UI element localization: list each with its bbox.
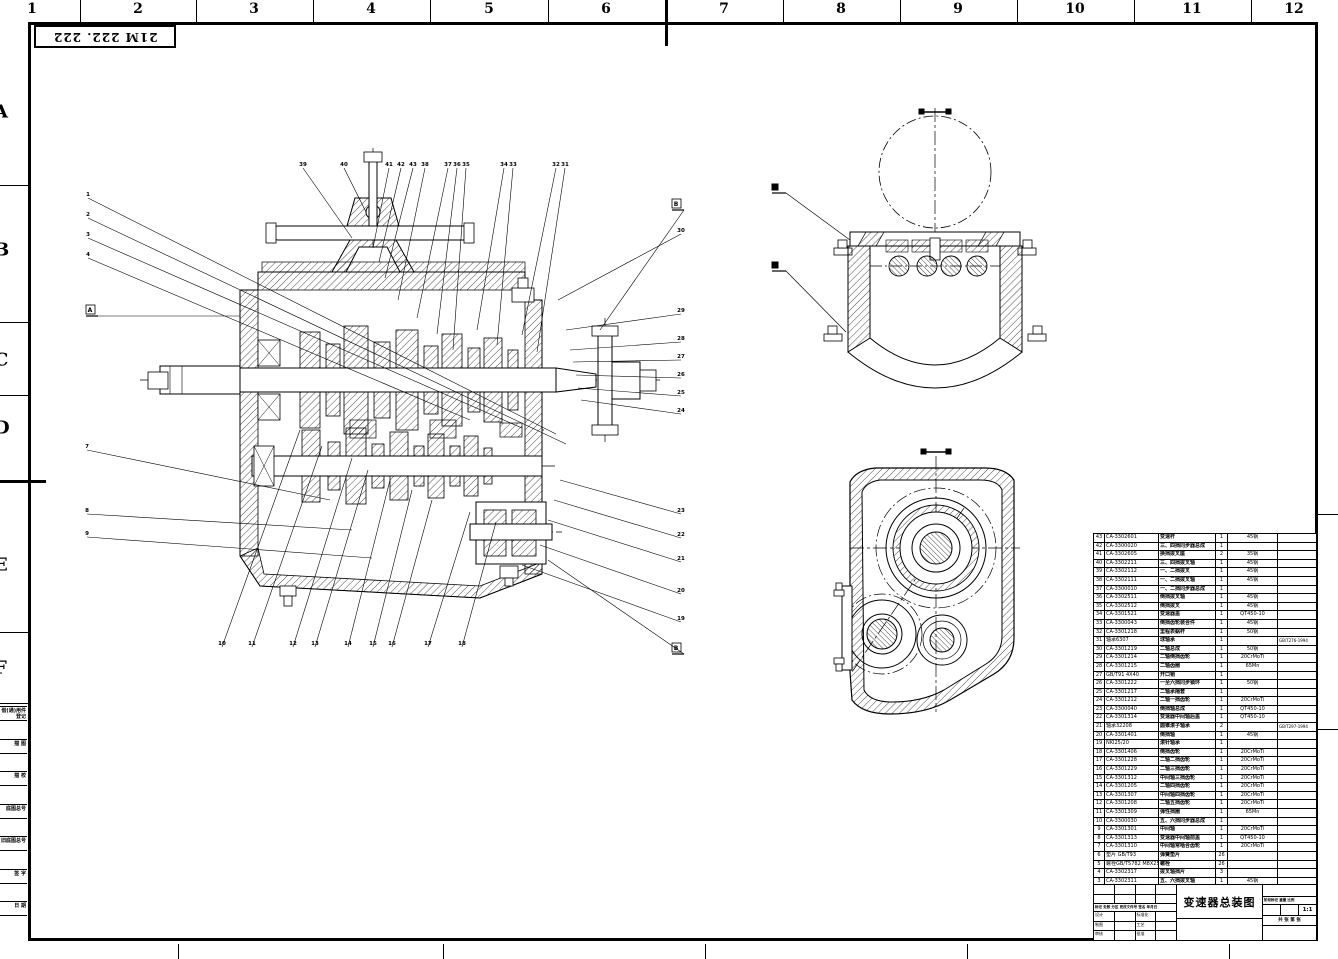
table-cell: 24 — [1094, 697, 1105, 705]
table-row: 19NKI25/20滚针轴承1 — [1094, 740, 1316, 749]
balloon-number: 23 — [677, 508, 685, 514]
table-cell: 31 — [1094, 637, 1105, 645]
table-cell: 换挡拨叉座 — [1159, 551, 1216, 559]
table-cell: 变速杆 — [1159, 534, 1216, 542]
table-cell: CA-3301222 — [1105, 680, 1159, 688]
balloon-number: 42 — [397, 162, 405, 168]
table-cell: 41 — [1094, 551, 1105, 559]
table-cell: 50钢 — [1228, 646, 1278, 654]
table-cell: CA-3301307 — [1105, 792, 1159, 800]
table-cell: 轴承32208 — [1105, 723, 1159, 731]
table-cell: 1 — [1216, 680, 1228, 688]
section-letter: B — [674, 645, 679, 652]
balloon-number: 12 — [289, 641, 297, 647]
revision-header: 标记 处数 分区 更改文件号 签名 年月日 — [1094, 904, 1176, 912]
table-cell: NKI25/20 — [1105, 740, 1159, 748]
table-cell: 1 — [1216, 826, 1228, 834]
table-row: 21轴承32208圆锥滚子轴承2GB/T297-1994 — [1094, 723, 1316, 732]
table-row: 30CA-3301219二轴总成150钢 — [1094, 646, 1316, 655]
balloon-number: 34 — [500, 162, 508, 168]
table-cell: 1 — [1216, 543, 1228, 551]
table-row: 24CA-3301212二轴一挡齿轮120CrMoTi — [1094, 697, 1316, 706]
balloon-number: 7 — [85, 444, 89, 450]
table-cell: 16 — [1094, 766, 1105, 774]
table-cell — [1228, 861, 1278, 869]
table-cell: 4 — [1094, 869, 1105, 877]
table-cell: 42 — [1094, 543, 1105, 551]
table-row: 12CA-3301208二轴五挡齿轮120CrMoTi — [1094, 800, 1316, 809]
table-cell: 13 — [1094, 792, 1105, 800]
table-cell — [1278, 560, 1316, 568]
table-row: 34CA-3301521变速器盖1QT450-10 — [1094, 611, 1316, 620]
table-cell — [1278, 646, 1316, 654]
table-cell — [1228, 586, 1278, 594]
table-cell: 1 — [1216, 775, 1228, 783]
balloon-number: 40 — [340, 162, 348, 168]
table-cell: 1 — [1216, 603, 1228, 611]
table-cell: 1 — [1216, 577, 1228, 585]
table-cell: 倒挡轴 — [1159, 732, 1216, 740]
table-row: 18CA-3301406倒挡齿轮120CrMoTi — [1094, 749, 1316, 758]
table-cell: 1 — [1216, 732, 1228, 740]
table-cell: 20CrMoTi — [1228, 800, 1278, 808]
table-cell — [1278, 766, 1316, 774]
table-row: 32CA-3301218里程表蜗杆150钢 — [1094, 629, 1316, 638]
table-cell: 26 — [1216, 852, 1228, 860]
table-cell: 1 — [1216, 611, 1228, 619]
table-cell: CA-3301309 — [1105, 809, 1159, 817]
table-cell: CA-3302601 — [1105, 534, 1159, 542]
table-cell: 36 — [1094, 594, 1105, 602]
table-cell: 开口销 — [1159, 672, 1216, 680]
table-cell: 二轴二挡齿轮 — [1159, 757, 1216, 765]
balloon-number: 11 — [248, 641, 256, 647]
table-cell: 9 — [1094, 826, 1105, 834]
table-cell: 垫片 GB/T93 — [1105, 852, 1159, 860]
table-cell — [1278, 697, 1316, 705]
table-cell: 21 — [1094, 723, 1105, 731]
balloon-number: 20 — [677, 588, 685, 594]
table-row: 11CA-3301309弹性挡圈165Mn — [1094, 809, 1316, 818]
table-cell: 二轴倒挡齿轮 — [1159, 654, 1216, 662]
table-cell — [1278, 818, 1316, 826]
table-row: 23CA-3300040倒挡轴总成1QT450-10 — [1094, 706, 1316, 715]
balloon-number: 2 — [86, 212, 90, 218]
table-cell — [1278, 603, 1316, 611]
table-row: 7CA-3301310中间轴常啮合齿轮120CrMoTi — [1094, 843, 1316, 852]
table-cell — [1278, 783, 1316, 791]
table-cell: 二轴齿圈 — [1159, 663, 1216, 671]
table-cell: 27 — [1094, 672, 1105, 680]
stage-header: 阶段标记 重量 比例 — [1263, 896, 1316, 905]
table-cell: 22 — [1094, 714, 1105, 722]
table-cell: 中间轴三挡齿轮 — [1159, 775, 1216, 783]
table-cell: CA-3301406 — [1105, 749, 1159, 757]
table-cell: QT450-10 — [1228, 706, 1278, 714]
table-cell: 18 — [1094, 749, 1105, 757]
table-cell: CA-3300010 — [1105, 586, 1159, 594]
table-cell: 三、四挡同步器总成 — [1159, 543, 1216, 551]
table-cell: 65Mn — [1228, 809, 1278, 817]
table-cell: 1 — [1216, 697, 1228, 705]
table-cell: 20CrMoTi — [1228, 826, 1278, 834]
table-cell: CA-3302211 — [1105, 560, 1159, 568]
table-cell: 8 — [1094, 835, 1105, 843]
table-cell — [1278, 749, 1316, 757]
table-cell: 轴承6307 — [1105, 637, 1159, 645]
drawing-title: 变速器总装图 — [1177, 885, 1262, 919]
table-cell: 螺栓 — [1159, 861, 1216, 869]
table-cell: 11 — [1094, 809, 1105, 817]
table-cell: 一、二挡同步器总成 — [1159, 586, 1216, 594]
table-cell — [1278, 809, 1316, 817]
table-cell: 45钢 — [1228, 732, 1278, 740]
table-cell — [1278, 792, 1316, 800]
table-cell — [1278, 672, 1316, 680]
table-row: 15CA-3301312中间轴三挡齿轮120CrMoTi — [1094, 775, 1316, 784]
table-cell: CA-3300040 — [1105, 706, 1159, 714]
weight-value — [1281, 905, 1299, 915]
table-cell: 五、六挡同步器总成 — [1159, 818, 1216, 826]
balloon-number: 18 — [458, 641, 466, 647]
balloon-number: 39 — [299, 162, 307, 168]
table-row: 33CA-3300043倒挡齿轮装合件145钢 — [1094, 620, 1316, 629]
balloon-number: 35 — [462, 162, 470, 168]
table-cell: 20CrMoTi — [1228, 783, 1278, 791]
table-row: 9CA-3301301中间轴120CrMoTi — [1094, 826, 1316, 835]
table-cell: CA-3301215 — [1105, 663, 1159, 671]
table-cell: 中间轴四挡齿轮 — [1159, 792, 1216, 800]
table-cell: 螺栓GB/T5782 M8X25 — [1105, 861, 1159, 869]
table-cell — [1228, 637, 1278, 645]
table-cell: 17 — [1094, 757, 1105, 765]
table-cell: 二轴四挡齿轮 — [1159, 783, 1216, 791]
table-cell: 20 — [1094, 732, 1105, 740]
balloon-number: 38 — [421, 162, 429, 168]
table-cell — [1228, 672, 1278, 680]
table-cell — [1278, 775, 1316, 783]
table-cell: 倒挡拨叉 — [1159, 603, 1216, 611]
table-row: 42CA-3300020三、四挡同步器总成1 — [1094, 543, 1316, 552]
table-cell — [1278, 843, 1316, 851]
table-cell: 40 — [1094, 560, 1105, 568]
table-cell: 25 — [1094, 689, 1105, 697]
table-cell: 5 — [1094, 861, 1105, 869]
table-cell: CA-3300030 — [1105, 818, 1159, 826]
table-cell: 一、二挡拨叉轴 — [1159, 577, 1216, 585]
table-cell: CA-3300020 — [1105, 543, 1159, 551]
main-section-view — [140, 148, 662, 606]
table-cell: QT450-10 — [1228, 611, 1278, 619]
table-cell: CA-3301313 — [1105, 835, 1159, 843]
table-cell: 1 — [1216, 714, 1228, 722]
table-cell — [1278, 826, 1316, 834]
table-cell: 一、二挡拨叉 — [1159, 568, 1216, 576]
table-cell — [1278, 577, 1316, 585]
table-cell: 1 — [1216, 706, 1228, 714]
table-row: 10CA-3300030五、六挡同步器总成1 — [1094, 818, 1316, 827]
table-row: 36CA-3302511倒挡拨叉轴145钢 — [1094, 594, 1316, 603]
table-cell: CA-3302111 — [1105, 577, 1159, 585]
balloon-number: 26 — [677, 372, 685, 378]
table-row: 4CA-3302317拨叉轴挡片3 — [1094, 869, 1316, 878]
title-block: 标记 处数 分区 更改文件号 签名 年月日 设计标准化 制图工艺 审核批准 变速… — [1093, 884, 1317, 941]
balloon-number: 24 — [677, 408, 685, 414]
table-cell: CA-3301208 — [1105, 800, 1159, 808]
balloon-number: 4 — [86, 252, 90, 258]
table-cell: 二轴三挡齿轮 — [1159, 766, 1216, 774]
table-cell: 45钢 — [1228, 568, 1278, 576]
balloon-number: 14 — [344, 641, 352, 647]
table-row: 28CA-3301215二轴齿圈165Mn — [1094, 663, 1316, 672]
table-row: 17CA-3301228二轴二挡齿轮120CrMoTi — [1094, 757, 1316, 766]
table-row: 39CA-3302112一、二挡拨叉145钢 — [1094, 568, 1316, 577]
table-cell: 3 — [1216, 869, 1228, 877]
table-cell — [1278, 714, 1316, 722]
table-cell: 32 — [1094, 629, 1105, 637]
table-cell: GB/T297-1994 — [1278, 723, 1316, 731]
table-cell: 倒挡拨叉轴 — [1159, 594, 1216, 602]
table-cell: CA-3301310 — [1105, 843, 1159, 851]
table-cell — [1278, 663, 1316, 671]
balloon-number: 9 — [85, 531, 89, 537]
table-cell — [1228, 723, 1278, 731]
table-cell: 1 — [1216, 792, 1228, 800]
table-cell — [1278, 732, 1316, 740]
table-cell: 14 — [1094, 783, 1105, 791]
table-cell — [1228, 740, 1278, 748]
table-cell: 1 — [1216, 843, 1228, 851]
table-cell: 12 — [1094, 800, 1105, 808]
drawing-title-cell: 变速器总装图 — [1177, 885, 1263, 940]
table-cell: 1 — [1216, 689, 1228, 697]
table-cell: CA-3301521 — [1105, 611, 1159, 619]
balloon-number: 16 — [388, 641, 396, 647]
table-cell: 二轴承隔套 — [1159, 689, 1216, 697]
table-cell: CA-3302317 — [1105, 869, 1159, 877]
balloon-number: 8 — [85, 508, 89, 514]
table-cell: 7 — [1094, 843, 1105, 851]
table-cell: 45钢 — [1228, 534, 1278, 542]
table-cell: QT450-10 — [1228, 835, 1278, 843]
table-cell: 1 — [1216, 586, 1228, 594]
table-cell: 26 — [1216, 861, 1228, 869]
table-row: 29CA-3301214二轴倒挡齿轮120CrMoTi — [1094, 654, 1316, 663]
table-row: 41CA-3302605换挡拨叉座235钢 — [1094, 551, 1316, 560]
table-cell: 50钢 — [1228, 629, 1278, 637]
table-cell: 20CrMoTi — [1228, 697, 1278, 705]
table-cell — [1278, 757, 1316, 765]
table-cell: CA-3300043 — [1105, 620, 1159, 628]
table-cell — [1228, 689, 1278, 697]
balloon-number: 28 — [677, 336, 685, 342]
table-cell: 19 — [1094, 740, 1105, 748]
table-cell: 1 — [1216, 620, 1228, 628]
balloon-number: 15 — [369, 641, 377, 647]
table-cell: 20CrMoTi — [1228, 792, 1278, 800]
table-cell: CA-3301301 — [1105, 826, 1159, 834]
table-cell: 20CrMoTi — [1228, 757, 1278, 765]
table-cell: 6 — [1094, 852, 1105, 860]
table-cell — [1278, 680, 1316, 688]
sheet-count: 共 张 第 张 — [1263, 916, 1316, 926]
table-cell — [1278, 800, 1316, 808]
table-cell: CA-3301214 — [1105, 654, 1159, 662]
table-cell: CA-3301219 — [1105, 646, 1159, 654]
table-cell: CA-3301205 — [1105, 783, 1159, 791]
balloon-number: 32 — [552, 162, 560, 168]
table-row: 25CA-3301217二轴承隔套1 — [1094, 689, 1316, 698]
table-cell: 20CrMoTi — [1228, 843, 1278, 851]
table-row: 27GB/T91 4X40开口销1 — [1094, 672, 1316, 681]
table-cell: 37 — [1094, 586, 1105, 594]
table-cell — [1278, 861, 1316, 869]
balloon-number: 30 — [677, 228, 685, 234]
table-cell: 10 — [1094, 818, 1105, 826]
table-cell — [1278, 629, 1316, 637]
table-row: 40CA-3302211三、四挡拨叉轴145钢 — [1094, 560, 1316, 569]
table-cell: 65Mn — [1228, 663, 1278, 671]
table-cell: GB/T276-1994 — [1278, 637, 1316, 645]
balloon-number: 27 — [677, 354, 685, 360]
table-cell: 38 — [1094, 577, 1105, 585]
table-cell: 里程表蜗杆 — [1159, 629, 1216, 637]
balloon-number: 3 — [86, 232, 90, 238]
table-cell: CA-3301212 — [1105, 697, 1159, 705]
table-cell: 20CrMoTi — [1228, 654, 1278, 662]
table-cell: 1 — [1216, 783, 1228, 791]
table-cell: 1 — [1216, 835, 1228, 843]
table-cell — [1278, 586, 1316, 594]
table-cell: 45钢 — [1228, 577, 1278, 585]
table-cell: 球轴承 — [1159, 637, 1216, 645]
table-cell — [1278, 594, 1316, 602]
balloon-number: 10 — [218, 641, 226, 647]
table-cell: 1 — [1216, 740, 1228, 748]
table-cell: 1 — [1216, 637, 1228, 645]
table-row: 43CA-3302601变速杆145钢 — [1094, 534, 1316, 543]
table-cell: CA-3301217 — [1105, 689, 1159, 697]
table-cell: QT450-10 — [1228, 714, 1278, 722]
balloon-number: 22 — [677, 532, 685, 538]
table-cell: 20CrMoTi — [1228, 775, 1278, 783]
table-cell: CA-3301218 — [1105, 629, 1159, 637]
table-cell — [1278, 534, 1316, 542]
table-row: 13CA-3301307中间轴四挡齿轮120CrMoTi — [1094, 792, 1316, 801]
balloon-number: 37 — [444, 162, 452, 168]
table-row: 38CA-3302111一、二挡拨叉轴145钢 — [1094, 577, 1316, 586]
table-cell: 33 — [1094, 620, 1105, 628]
table-cell: 二轴五挡齿轮 — [1159, 800, 1216, 808]
table-row: 8CA-3301313变速器中间轴前盖1QT450-10 — [1094, 835, 1316, 844]
balloon-number: 17 — [424, 641, 432, 647]
table-cell: 35钢 — [1228, 551, 1278, 559]
balloon-number: 13 — [311, 641, 319, 647]
table-row: 20CA-3301401倒挡轴145钢 — [1094, 732, 1316, 741]
table-cell: 二轴一挡齿轮 — [1159, 697, 1216, 705]
table-cell: 43 — [1094, 534, 1105, 542]
parts-list-table: 43CA-3302601变速杆145钢42CA-3300020三、四挡同步器总成… — [1093, 533, 1317, 929]
table-cell — [1278, 568, 1316, 576]
table-row: 31轴承6307球轴承1GB/T276-1994 — [1094, 637, 1316, 646]
table-cell: 弹簧垫片 — [1159, 852, 1216, 860]
table-cell: 45钢 — [1228, 560, 1278, 568]
table-cell: 1 — [1216, 672, 1228, 680]
table-cell: 1 — [1216, 568, 1228, 576]
table-cell — [1278, 689, 1316, 697]
table-cell: 倒挡齿轮装合件 — [1159, 620, 1216, 628]
table-row: 14CA-3301205二轴四挡齿轮120CrMoTi — [1094, 783, 1316, 792]
table-cell: CA-3302511 — [1105, 594, 1159, 602]
table-row: 6垫片 GB/T93弹簧垫片26 — [1094, 852, 1316, 861]
table-cell: 1 — [1216, 766, 1228, 774]
table-cell: 1 — [1216, 646, 1228, 654]
balloon-number: 1 — [86, 192, 90, 198]
table-cell: 倒挡轴总成 — [1159, 706, 1216, 714]
balloon-number: 25 — [677, 390, 685, 396]
table-cell — [1228, 543, 1278, 551]
table-cell: 20CrMoTi — [1228, 766, 1278, 774]
drawing-sheet: 123456789101112 ABCDEF 21M 222. 222 借(通)… — [0, 0, 1338, 959]
table-cell: GB/T91 4X40 — [1105, 672, 1159, 680]
balloon-number: 33 — [509, 162, 517, 168]
table-cell: 中间轴常啮合齿轮 — [1159, 843, 1216, 851]
shift-cover-section-view — [772, 108, 1046, 388]
table-cell — [1278, 869, 1316, 877]
table-cell: 45钢 — [1228, 603, 1278, 611]
table-cell: 滚针轴承 — [1159, 740, 1216, 748]
table-cell: CA-3301314 — [1105, 714, 1159, 722]
table-cell: 1 — [1216, 809, 1228, 817]
table-cell — [1278, 706, 1316, 714]
table-cell: 中间轴 — [1159, 826, 1216, 834]
table-cell: 1 — [1216, 534, 1228, 542]
table-cell: 1 — [1216, 560, 1228, 568]
table-cell: CA-3302605 — [1105, 551, 1159, 559]
table-row: 5螺栓GB/T5782 M8X25螺栓26 — [1094, 861, 1316, 870]
table-cell: 29 — [1094, 654, 1105, 662]
table-cell — [1278, 852, 1316, 860]
table-cell — [1278, 654, 1316, 662]
scale-value: 1:1 — [1299, 905, 1316, 915]
table-cell: 26 — [1094, 680, 1105, 688]
end-view — [834, 449, 1020, 714]
section-letter: B — [674, 201, 679, 208]
table-cell: 45钢 — [1228, 620, 1278, 628]
scale-block: 阶段标记 重量 比例 1:1 共 张 第 张 — [1263, 885, 1316, 940]
table-cell: CA-3302112 — [1105, 568, 1159, 576]
table-cell: 28 — [1094, 663, 1105, 671]
table-row: 16CA-3301229二轴三挡齿轮120CrMoTi — [1094, 766, 1316, 775]
table-cell — [1278, 620, 1316, 628]
table-cell — [1278, 611, 1316, 619]
table-cell: 弹性挡圈 — [1159, 809, 1216, 817]
table-cell — [1228, 852, 1278, 860]
table-cell: 2 — [1216, 551, 1228, 559]
balloon-number: 43 — [409, 162, 417, 168]
revision-grid: 标记 处数 分区 更改文件号 签名 年月日 设计标准化 制图工艺 审核批准 — [1094, 885, 1177, 940]
table-cell: 变速器盖 — [1159, 611, 1216, 619]
table-cell: 20CrMoTi — [1228, 749, 1278, 757]
table-cell — [1278, 551, 1316, 559]
table-cell: 二轴总成 — [1159, 646, 1216, 654]
table-row: 22CA-3301314变速器中间轴后盖1QT450-10 — [1094, 714, 1316, 723]
table-cell: 三、四挡拨叉轴 — [1159, 560, 1216, 568]
table-cell: 1 — [1216, 818, 1228, 826]
table-cell: CA-3301229 — [1105, 766, 1159, 774]
table-cell: 34 — [1094, 611, 1105, 619]
section-letter: A — [88, 307, 93, 314]
